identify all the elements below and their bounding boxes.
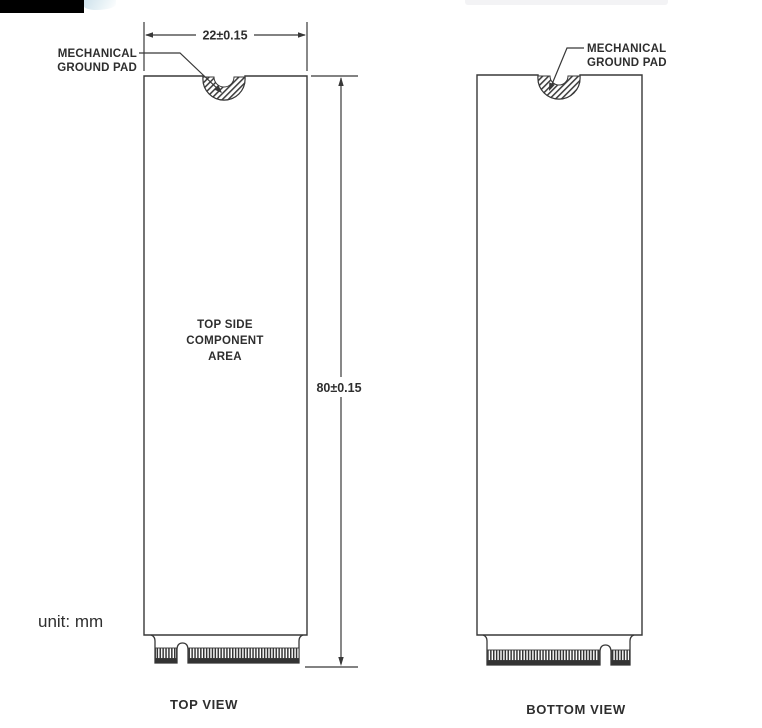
top-view-ground-pad-label-line2: GROUND PAD: [57, 62, 137, 74]
height-dimension: [305, 76, 358, 667]
component-area-label-line3: AREA: [208, 351, 242, 363]
height-dimension-value: 80±0.15: [316, 381, 361, 395]
width-dim-arrow-right: [298, 32, 306, 37]
height-dim-arrow-top: [338, 77, 343, 86]
component-area-label-line2: COMPONENT: [186, 335, 263, 347]
top-view-ground-pad-label-line1: MECHANICAL: [58, 48, 137, 60]
width-dim-arrow-left: [145, 32, 153, 37]
bottom-view-ground-pad-label-line1: MECHANICAL: [587, 43, 666, 55]
width-dimension-value: 22±0.15: [202, 29, 247, 43]
bottom-view-edge-fingers-main: [488, 650, 600, 665]
top-view-edge-fingers-small: [155, 648, 177, 663]
bottom-view-board-outline: [477, 75, 642, 635]
bottom-view-caption: BOTTOM VIEW: [526, 702, 626, 717]
mechanical-drawing: 22±0.15 MECHANICAL GROUND PAD TOP SIDE C…: [0, 0, 762, 728]
height-dim-arrow-bottom: [338, 657, 343, 666]
top-view-edge-fingers-main: [189, 648, 300, 663]
component-area-label-line1: TOP SIDE: [197, 319, 253, 331]
unit-note: unit: mm: [38, 612, 103, 631]
bottom-view-ground-pad-notch: [538, 76, 580, 99]
top-view-caption: TOP VIEW: [170, 697, 238, 712]
bottom-view-ground-pad-label-line2: GROUND PAD: [587, 57, 667, 69]
bottom-view-edge-fingers-small: [612, 650, 631, 665]
